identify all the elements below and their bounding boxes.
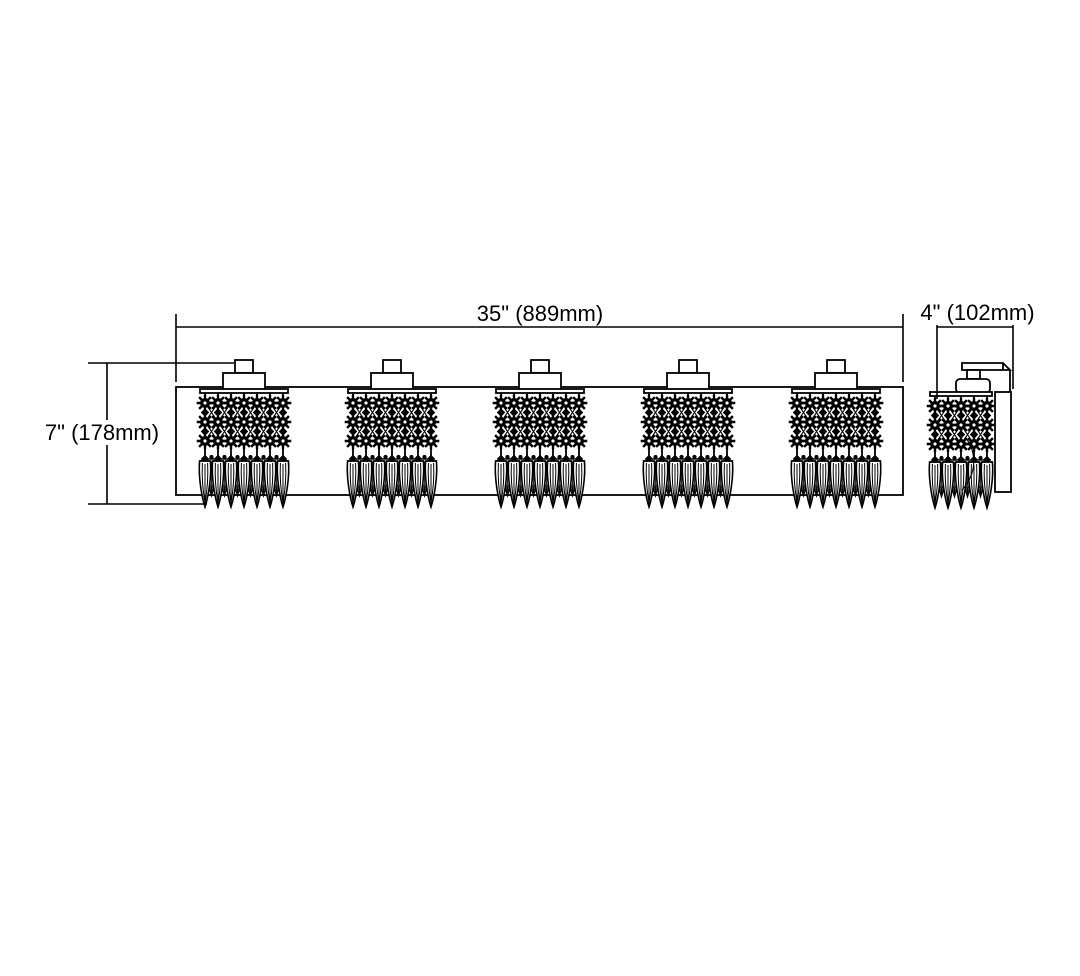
fixture-line-drawing (0, 0, 1080, 976)
width-dimension-label: 35" (889mm) (340, 301, 740, 326)
side-candle-tube (967, 370, 980, 379)
diagram-canvas: 35" (889mm) 7" (178mm) 4" (102mm) (0, 0, 1080, 976)
height-dimension-label: 7" (178mm) (32, 420, 172, 445)
depth-dimension-label: 4" (102mm) (905, 300, 1050, 325)
side-view (927, 363, 1011, 508)
crystal-shade-side (927, 392, 996, 508)
wall-plate (995, 392, 1011, 492)
front-view (176, 360, 903, 507)
side-socket (956, 379, 990, 393)
